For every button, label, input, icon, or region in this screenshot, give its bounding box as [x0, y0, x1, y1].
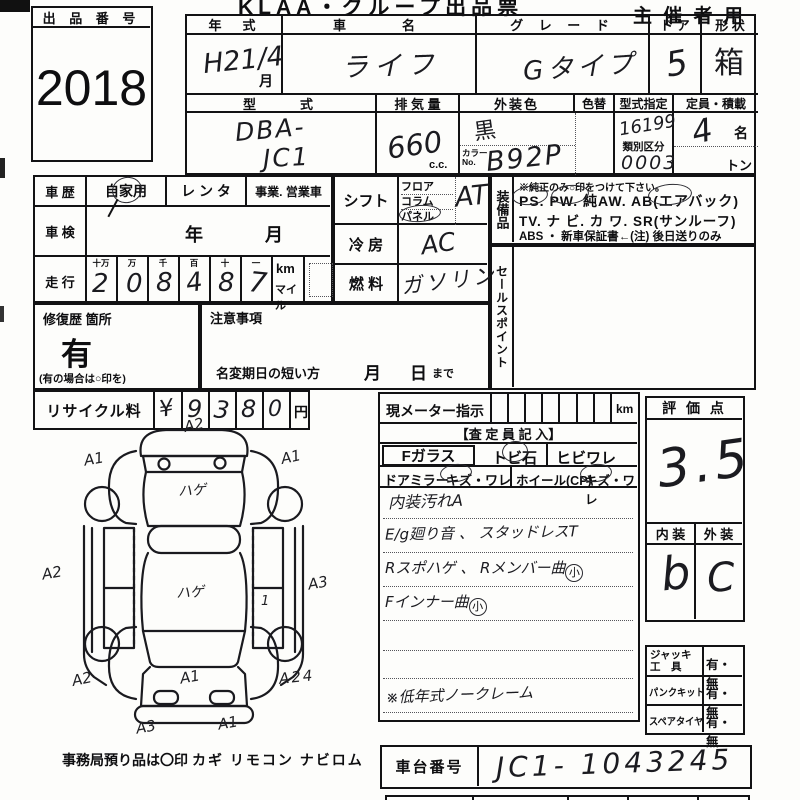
cowl-circle — [159, 459, 170, 470]
shift-value: AT — [454, 181, 490, 211]
grade-cell: Gタイプ — [477, 35, 650, 95]
digit: 8 — [156, 270, 173, 296]
meter-km-unit: km — [616, 402, 633, 416]
right-front-fender — [251, 451, 278, 524]
mileage-label: 走 行 — [35, 257, 87, 305]
jack-tool-label: ジャッキ 工 具 — [650, 649, 691, 673]
auction-sheet: KLAA・グループ出品票 主 催 者 用 出 品 番 号 2018 年 式 車 … — [0, 0, 800, 800]
divider — [610, 394, 612, 422]
note-line — [383, 620, 633, 621]
shaken-year: 年 — [185, 221, 203, 247]
kata-label: 型式指定 — [615, 95, 674, 113]
ton-label: トン — [726, 155, 752, 174]
door-cell: 5 — [650, 35, 702, 95]
footer-office-note: 事務局預り品は〇印 — [62, 750, 188, 770]
right-rear-wheel — [268, 627, 302, 661]
cowl-circle — [215, 458, 226, 469]
scan-corner-mark — [0, 0, 30, 12]
assessor-note-3: Rスポハゲ 、 Rメンバー曲小 — [385, 560, 583, 582]
ac-label: 冷 房 — [335, 225, 399, 265]
divider — [546, 444, 548, 465]
left-mirror — [85, 487, 119, 521]
assessor-note-1: 内装汚れA — [388, 493, 463, 512]
divider — [576, 394, 578, 422]
left-front-fender — [109, 451, 136, 524]
note-line — [383, 678, 633, 679]
teiin-row-divider — [674, 146, 758, 147]
colorno-value: B92P — [485, 141, 565, 176]
damage-mark: ハゲ — [175, 581, 204, 603]
roof-left-edge — [141, 553, 148, 631]
note-line — [383, 650, 633, 651]
teiin-cell: 4 名 トン — [674, 113, 758, 177]
shift-table: シフト フロア コラム パネル AT 冷 房 AC 燃 料 ガソリン — [333, 175, 490, 303]
assessor-note-3-text: Rスポハゲ 、 Rメンバー曲 — [385, 559, 565, 577]
sales-point-box: セールスポイント — [490, 245, 756, 390]
door-value: 5 — [663, 45, 690, 82]
divider — [524, 394, 526, 422]
scan-edge-mark — [0, 306, 4, 322]
caution-day: 日 — [410, 359, 427, 384]
digit: 7 — [248, 268, 269, 298]
damage-mark: A1 — [83, 448, 106, 469]
color-label: 外装色 — [460, 95, 575, 113]
colorchg-label: 色替 — [575, 95, 615, 113]
divider — [541, 394, 543, 422]
small-circle-mark: 小 — [565, 564, 583, 582]
mileage-digit-cell: 十万 2 — [87, 257, 118, 305]
assessor-note-4-text: Fインナー曲 — [385, 593, 469, 611]
puncture-kit-label: パンクキット — [649, 684, 705, 699]
name-value: ライフ — [341, 51, 441, 81]
score-label: 評 価 点 — [647, 398, 742, 418]
grade-value: Gタイプ — [522, 51, 638, 85]
rear-glass — [143, 631, 245, 667]
score-value: 3.5 — [654, 432, 755, 497]
damage-mark: A24 — [278, 666, 315, 688]
shift-label: シフト — [335, 177, 399, 225]
shape-value: 箱 — [714, 49, 744, 79]
exterior-label: 外 装 — [695, 524, 742, 543]
partial-table-edge — [385, 795, 750, 800]
model-label: 型 式 — [187, 95, 377, 113]
color-value: 黒 — [473, 120, 498, 145]
year-cell: H21/4 月 — [187, 35, 283, 95]
exterior-score: C — [706, 557, 737, 599]
mileage-digit-cell: 百 4 — [180, 257, 211, 305]
disp-unit: c.c. — [429, 159, 447, 171]
left-rear-wheel — [85, 627, 119, 661]
digit: 4 — [184, 269, 204, 297]
model-cell: DBA- JC1 — [187, 113, 377, 177]
score-box: 評 価 点 3.5 内 装 外 装 b C — [645, 396, 745, 622]
fuel-value: ガソリン — [400, 265, 498, 298]
damage-mark: ハゲ — [177, 479, 206, 501]
repair-box: 修復歴 箇所 有 (有の場合は○印を) — [33, 303, 200, 390]
caution-deadline: 名変期日の短い方 — [216, 363, 320, 382]
divider — [593, 394, 595, 422]
kata-cell: 16199 類別区分 0003 — [615, 113, 674, 177]
door-label: ド ア — [650, 16, 702, 35]
damage-mark: A3 — [307, 572, 330, 593]
right-rear-fender — [251, 627, 278, 699]
fuel-label: 燃 料 — [335, 265, 399, 301]
ac-cell: AC — [399, 225, 487, 265]
color-cell: 黒 カラー No. B92P — [460, 113, 615, 177]
history-table: 車 歴 自家用 レ ン タ 事業. 営業車 車 検 年 月 走 行 十万 2 万… — [33, 175, 333, 303]
assessor-note-2: E/g廻り音 、 スタッドレスT — [385, 524, 578, 542]
equipment-line2: TV. ナ ビ. カ ワ. SR(サンルーフ) — [519, 210, 736, 230]
chassis-value: JC1- 1043245 — [496, 746, 734, 782]
equipment-label-text: 装備品 — [493, 190, 512, 229]
mileage-unit-cell: km マイル — [273, 257, 305, 305]
digit-header: 十 — [211, 258, 239, 268]
right-mirror — [268, 487, 302, 521]
equipment-line3: ABS ・ 新車保証書←(注) 後日送りのみ — [519, 228, 722, 244]
roof-right-edge — [240, 553, 247, 631]
divider — [510, 465, 512, 486]
divider — [647, 418, 742, 420]
taillight — [210, 691, 234, 704]
digit-header: 百 — [180, 258, 208, 268]
equipment-label: 装備品 — [492, 177, 514, 242]
note-line — [383, 586, 633, 587]
kata-value: 16199 — [618, 113, 677, 140]
grade-label: グ レ ー ド — [477, 16, 650, 35]
year-label: 年 式 — [187, 16, 283, 35]
model-value-2: JC1 — [262, 144, 310, 171]
digit: 2 — [92, 271, 109, 297]
divider — [694, 522, 696, 619]
mileage-digit-cell: 一 7 — [242, 257, 273, 305]
auction-number: 2018 — [33, 48, 150, 128]
digit-header: 万 — [118, 258, 146, 268]
teiin-label: 定員・積載 — [674, 95, 758, 113]
vehicle-table: 年 式 車 名 グ レ ー ド ド ア 形 状 H21/4 月 ライフ Gタイプ… — [185, 14, 756, 175]
damage-mark: 1 — [261, 594, 269, 609]
spare-tire-label: スペアタイヤ — [649, 713, 703, 728]
caution-month: 月 — [364, 359, 381, 384]
fuel-cell: ガソリン — [399, 265, 487, 301]
ruibetsu-value: 0003 — [621, 154, 677, 173]
glass-label: Fガラス — [382, 445, 475, 466]
repair-label: 修復歴 箇所 — [43, 309, 112, 328]
auction-number-box: 出 品 番 号 2018 — [31, 6, 153, 162]
windshield — [148, 526, 240, 553]
mileage-digit-cell: 十 8 — [211, 257, 242, 305]
repair-value: 有 — [61, 329, 92, 374]
note-line — [383, 518, 633, 519]
assessor-header: 【査 定 員 記 入】 — [380, 424, 637, 442]
digit: 0 — [126, 271, 143, 297]
note-line — [383, 552, 633, 553]
colorno-label: カラー No. — [462, 149, 488, 168]
mileage-digit-cell: 千 8 — [149, 257, 180, 305]
divider — [558, 394, 560, 422]
divider — [380, 486, 637, 488]
digit-header: 十万 — [87, 258, 115, 268]
mileage-check-box — [309, 263, 333, 297]
chassis-label: 車台番号 — [382, 747, 479, 786]
history-label: 車 歴 — [35, 177, 87, 207]
history-rental: レ ン タ — [167, 177, 247, 207]
teiin-unit: 名 — [734, 123, 748, 143]
auction-number-label: 出 品 番 号 — [33, 8, 150, 28]
caution-box: 注意事項 名変期日の短い方 月 日 まで — [200, 303, 490, 390]
mileage-digit-cell: 万 0 — [118, 257, 149, 305]
repair-note: (有の場合は○印を) — [39, 371, 126, 386]
shape-cell: 箱 — [702, 35, 758, 95]
assessor-note-4: Fインナー曲小 — [385, 594, 487, 616]
teiin-value: 4 — [689, 113, 716, 149]
sales-point-label: セールスポイント — [492, 247, 514, 387]
left-rear-fender — [109, 627, 136, 699]
damage-mark: A1 — [217, 712, 240, 733]
shaken-cell: 年 月 — [87, 207, 330, 257]
name-label: 車 名 — [283, 16, 477, 35]
sales-point-label-text: セールスポイント — [494, 265, 511, 369]
history-business: 事業. 営業車 — [247, 177, 330, 207]
footer-items: カギ リモコン ナビロム — [192, 750, 364, 770]
interior-label: 内 装 — [647, 524, 694, 543]
shape-label: 形 状 — [702, 16, 758, 35]
damage-mark: A3 — [135, 716, 158, 737]
interior-score: b — [659, 549, 693, 598]
chassis-box: 車台番号 JC1- 1043245 — [380, 745, 752, 789]
assessor-note-5: ※低年式ノークレーム — [386, 685, 534, 705]
caution-made: まで — [432, 365, 454, 381]
shaken-label: 車 検 — [35, 207, 87, 257]
ruibetsu-label: 類別区分 — [615, 139, 672, 153]
meter-label: 現メーター指示 — [386, 401, 484, 421]
year-unit: 月 — [259, 71, 273, 91]
divider — [507, 394, 509, 422]
taillight — [154, 691, 178, 704]
digit-header: 千 — [149, 258, 177, 268]
accessories-box: ジャッキ 工 具 有・無 パンクキット 有・無 スペアタイヤ 有・無 — [645, 645, 745, 735]
km-unit: km — [276, 261, 295, 276]
note-line — [383, 712, 633, 713]
digit: 8 — [218, 270, 235, 296]
small-circle-mark: 小 — [469, 598, 487, 616]
ac-value: AC — [419, 229, 457, 259]
shaken-month: 月 — [265, 221, 283, 247]
disp-cell: 660 c.c. — [377, 113, 460, 177]
scan-edge-mark — [0, 158, 5, 178]
model-value-1: DBA- — [234, 114, 306, 145]
divider — [490, 394, 492, 422]
disp-label: 排 気 量 — [377, 95, 460, 113]
damage-mark: A1 — [179, 666, 202, 687]
color-change-divider — [575, 113, 576, 177]
name-cell: ライフ — [283, 35, 477, 95]
caution-label: 注意事項 — [210, 308, 262, 327]
damage-mark: A2 — [41, 562, 64, 583]
